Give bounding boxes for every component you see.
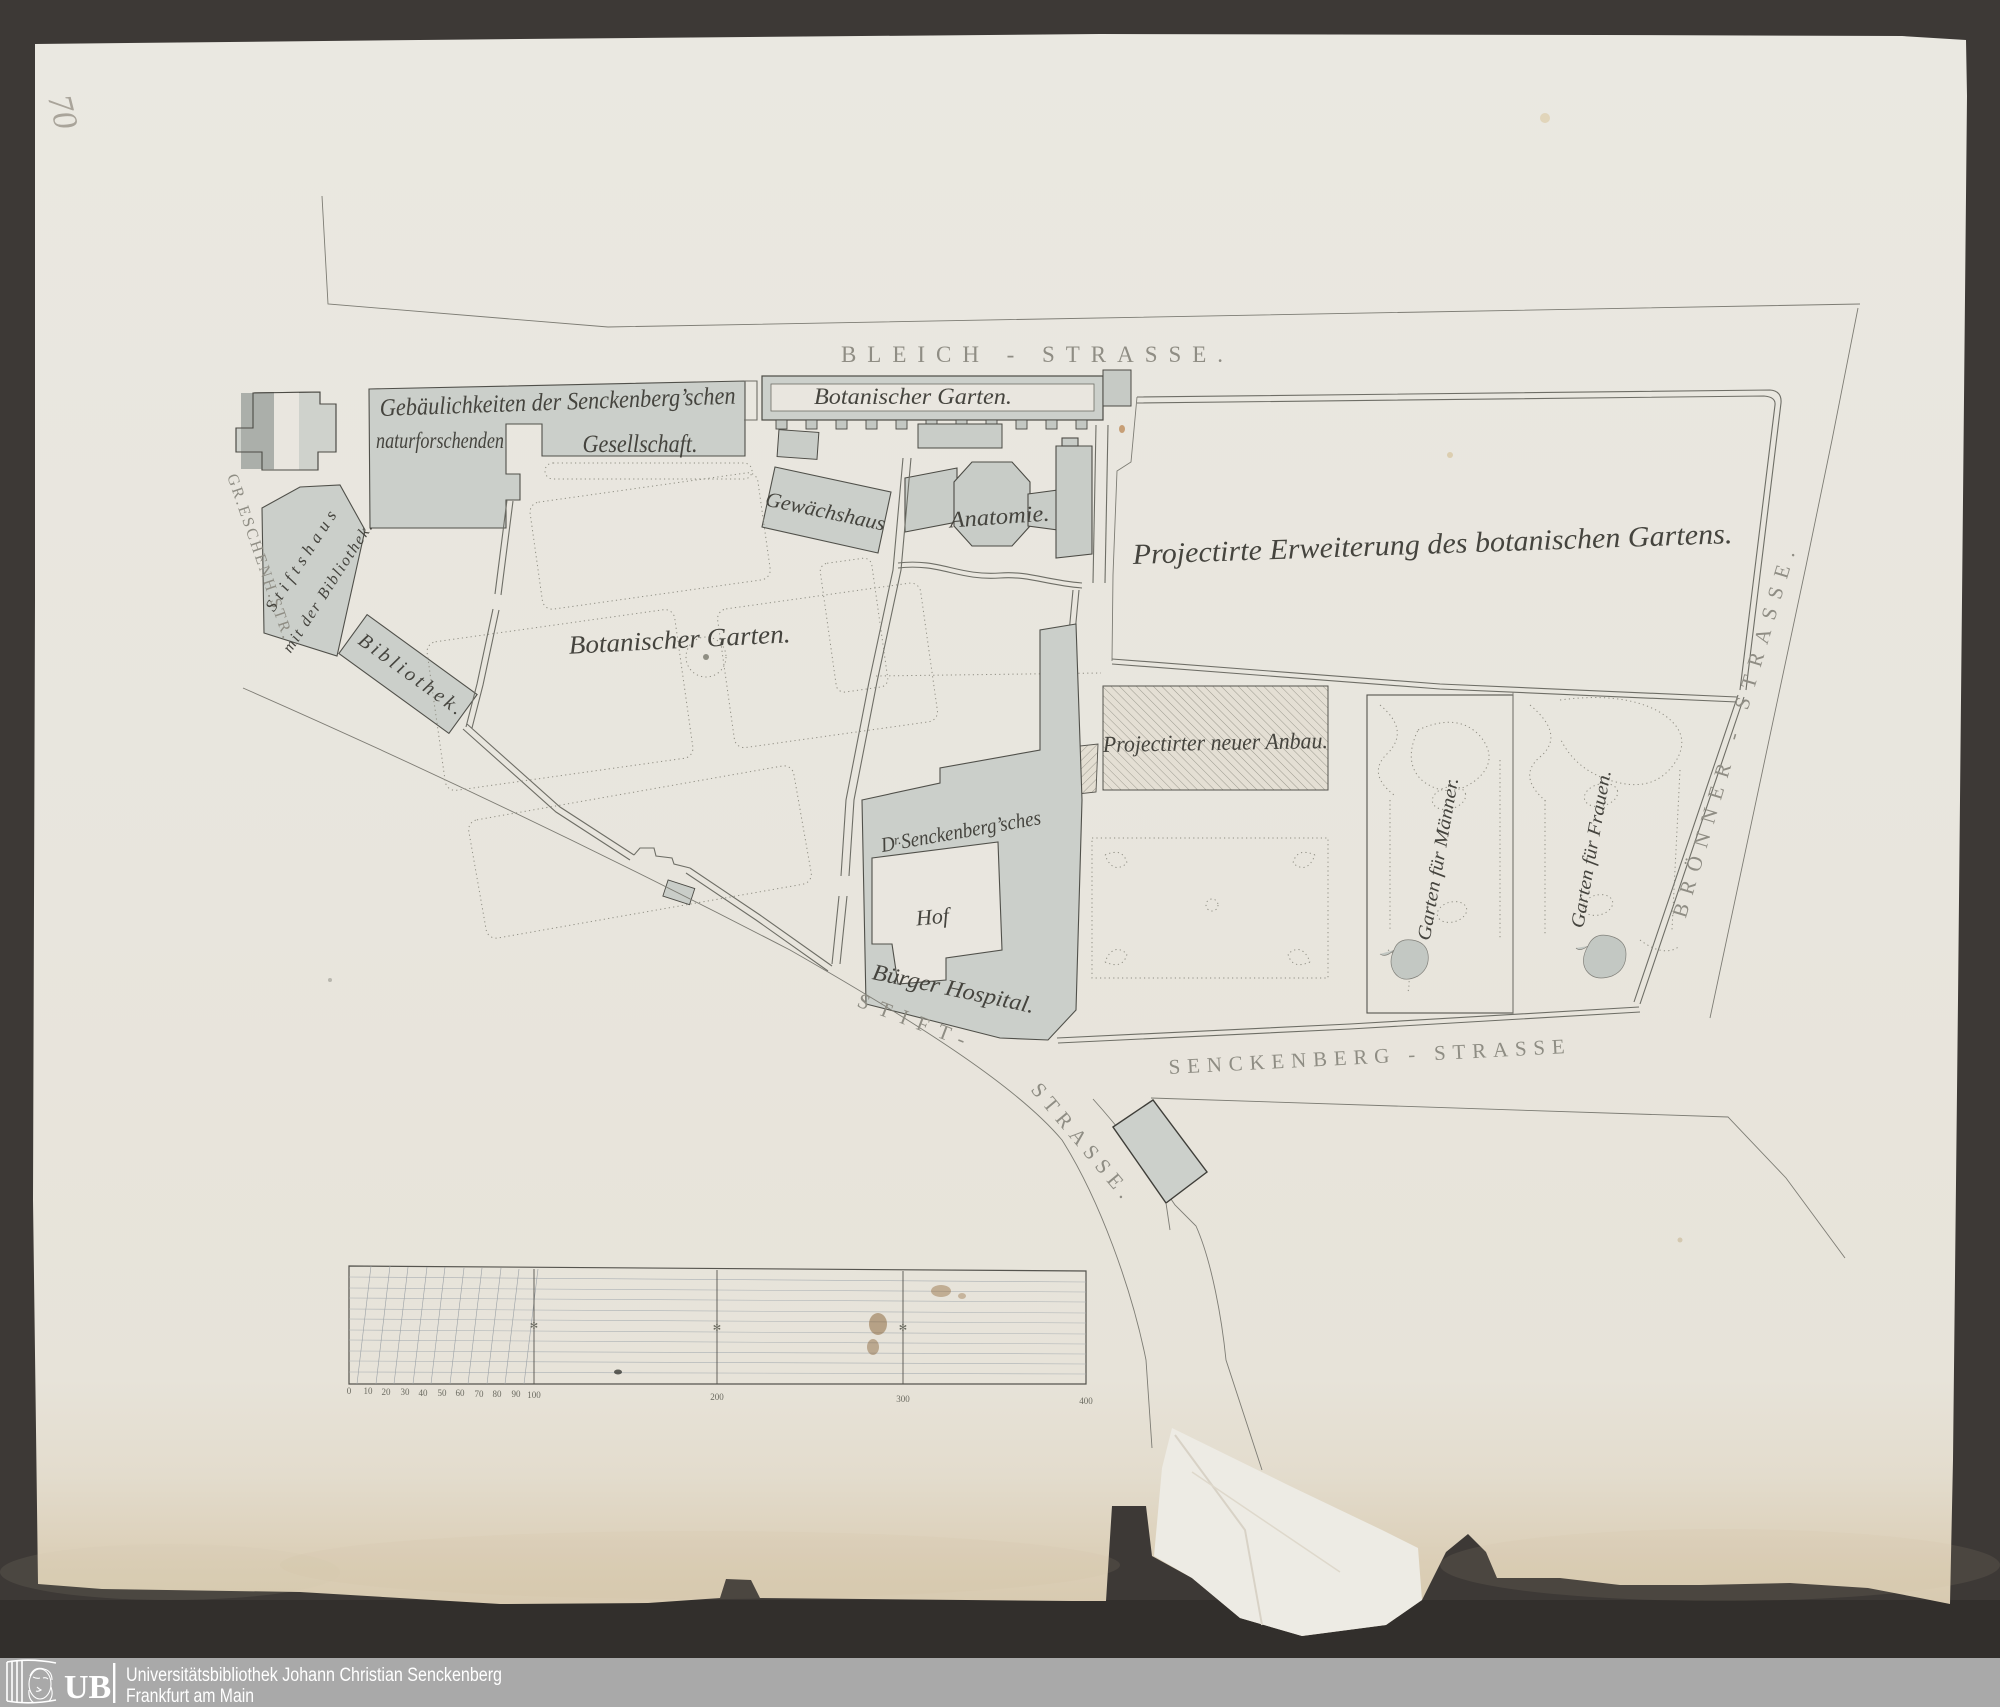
svg-text:20: 20: [382, 1387, 392, 1397]
svg-text:200: 200: [710, 1392, 724, 1402]
svg-text:naturforschenden: naturforschenden: [376, 428, 504, 453]
svg-text:UB: UB: [64, 1669, 111, 1706]
svg-text:400: 400: [1079, 1396, 1093, 1406]
svg-text:300: 300: [896, 1394, 910, 1404]
svg-text:100: 100: [527, 1390, 541, 1400]
svg-text:Frankfurt am Main: Frankfurt am Main: [126, 1686, 254, 1707]
svg-text:Botanischer Garten.: Botanischer Garten.: [814, 384, 1012, 409]
svg-text:BLEICH - STRASSE.: BLEICH - STRASSE.: [841, 342, 1231, 367]
svg-text:✻: ✻: [530, 1321, 538, 1332]
svg-text:10: 10: [364, 1386, 374, 1396]
svg-text:70: 70: [475, 1389, 485, 1399]
svg-text:50: 50: [438, 1388, 448, 1398]
svg-text:✻: ✻: [899, 1323, 907, 1334]
svg-text:Gesellschaft.: Gesellschaft.: [583, 431, 698, 458]
svg-text:80: 80: [493, 1389, 503, 1399]
svg-text:Hof: Hof: [914, 902, 953, 930]
svg-text:Universitätsbibliothek Johann: Universitätsbibliothek Johann Christian …: [126, 1665, 502, 1686]
svg-text:40: 40: [419, 1388, 429, 1398]
svg-text:90: 90: [512, 1389, 522, 1399]
svg-text:0: 0: [347, 1386, 352, 1396]
svg-text:Projectirter neuer Anbau.: Projectirter neuer Anbau.: [1102, 728, 1328, 757]
svg-text:✻: ✻: [713, 1323, 721, 1334]
svg-text:30: 30: [401, 1387, 411, 1397]
svg-text:60: 60: [456, 1388, 466, 1398]
